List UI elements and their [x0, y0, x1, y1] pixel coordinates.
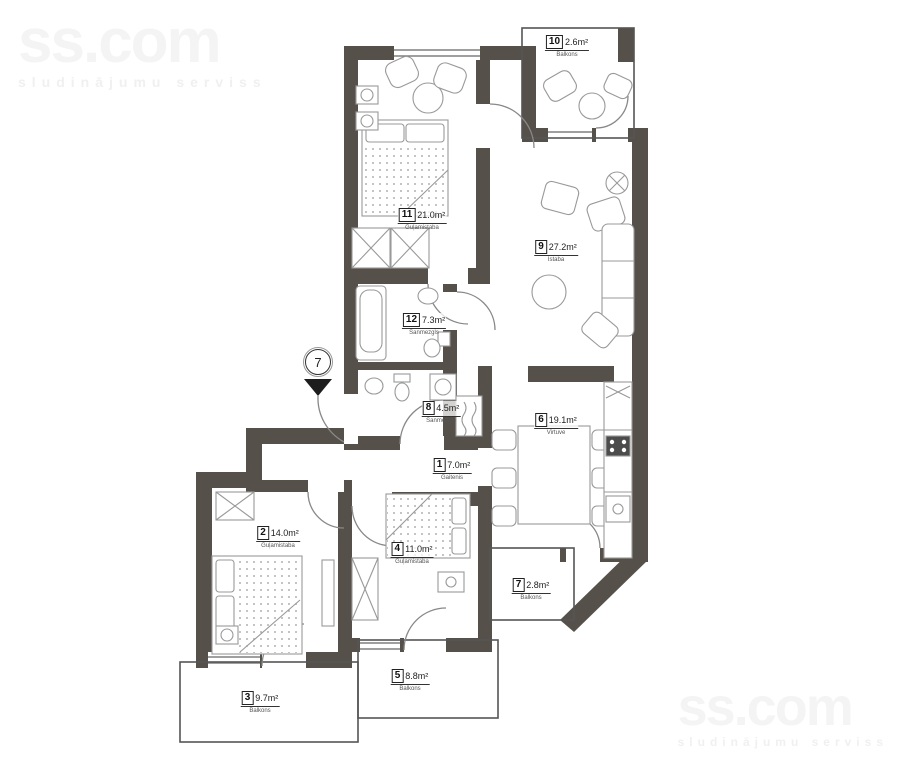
hob: [606, 436, 630, 456]
entrance-marker: 7: [304, 349, 332, 396]
room-number: 4: [392, 542, 404, 556]
room-label-12: 127.3m² Sanmezgls: [402, 313, 446, 336]
room-area: 2.6m²: [565, 37, 588, 47]
floor-plan-svg: [0, 0, 910, 762]
room-number: 2: [257, 526, 269, 540]
kitchen-counter: [604, 382, 632, 558]
room-name: Balkons: [520, 595, 541, 601]
room-name: Istaba: [548, 257, 564, 263]
wardrobe-room11: [352, 228, 429, 268]
room-name: Sanmezgls: [409, 330, 439, 336]
room-label-1: 17.0m² Gaitenis: [433, 458, 472, 481]
coffee-table: [532, 275, 566, 309]
room-area: 4.5m²: [436, 403, 459, 413]
room-number: 7: [513, 578, 525, 592]
sink: [365, 378, 383, 394]
room-label-11: 1121.0m² Guļamistaba: [398, 208, 447, 231]
room-label-8: 84.5m² Sanmezgls: [422, 401, 461, 424]
floor-plan-page: ss.com sludinājumu serviss: [0, 0, 910, 762]
room-number: 1: [434, 458, 446, 472]
table-chairs-room11: [383, 54, 469, 113]
wall-unit: [322, 560, 334, 626]
room-number: 11: [399, 208, 416, 222]
toilet: [424, 339, 440, 357]
room-number: 5: [392, 669, 404, 683]
room-name: Gaitenis: [441, 475, 463, 481]
room-name: Guļamistaba: [405, 225, 439, 231]
room-area: 2.8m²: [526, 580, 549, 590]
kitchen-furniture: [492, 382, 632, 558]
dining-table: [518, 426, 590, 524]
room-name: Sanmezgls: [426, 418, 456, 424]
room-label-7: 72.8m² Balkons: [512, 578, 551, 601]
wall-fixtures-room11: [356, 86, 378, 130]
room-number: 12: [403, 313, 420, 327]
room-label-2: 214.0m² Guļamistaba: [256, 526, 300, 549]
room-name: Virtuve: [547, 430, 566, 436]
room-area: 7.0m²: [447, 460, 470, 470]
room-name: Guļamistaba: [395, 559, 429, 565]
room-label-5: 58.8m² Balkons: [391, 669, 430, 692]
room-number: 10: [546, 35, 563, 49]
room-label-4: 411.0m² Guļamistaba: [391, 542, 434, 565]
room-label-9: 927.2m² Istaba: [534, 240, 578, 263]
room-number: 8: [423, 401, 435, 415]
room-area: 14.0m²: [271, 528, 299, 538]
bedroom2-furniture: [212, 492, 334, 654]
entrance-number: 7: [305, 349, 331, 375]
room-name: Balkons: [399, 686, 420, 692]
room-label-6: 619.1m² Virtuve: [534, 413, 578, 436]
room-area: 9.7m²: [255, 693, 278, 703]
room-area: 8.8m²: [405, 671, 428, 681]
toilet-tank: [394, 374, 410, 382]
room-label-10: 102.6m² Balkons: [545, 35, 589, 58]
sink: [418, 288, 438, 304]
room-area: 21.0m²: [417, 210, 445, 220]
room-number: 3: [242, 691, 254, 705]
room-area: 19.1m²: [549, 415, 577, 425]
room-name: Balkons: [556, 52, 577, 58]
room-area: 27.2m²: [549, 242, 577, 252]
balcony10-furniture: [541, 68, 634, 119]
room-number: 9: [535, 240, 547, 254]
room-number: 6: [535, 413, 547, 427]
room-name: Guļamistaba: [261, 543, 295, 549]
entrance-arrow-icon: [304, 379, 332, 396]
bed-room11: [362, 120, 448, 216]
room-label-3: 39.7m² Balkons: [241, 691, 280, 714]
toilet: [395, 383, 409, 401]
room-area: 7.3m²: [422, 315, 445, 325]
room-name: Balkons: [249, 708, 270, 714]
room-area: 11.0m²: [405, 544, 432, 554]
